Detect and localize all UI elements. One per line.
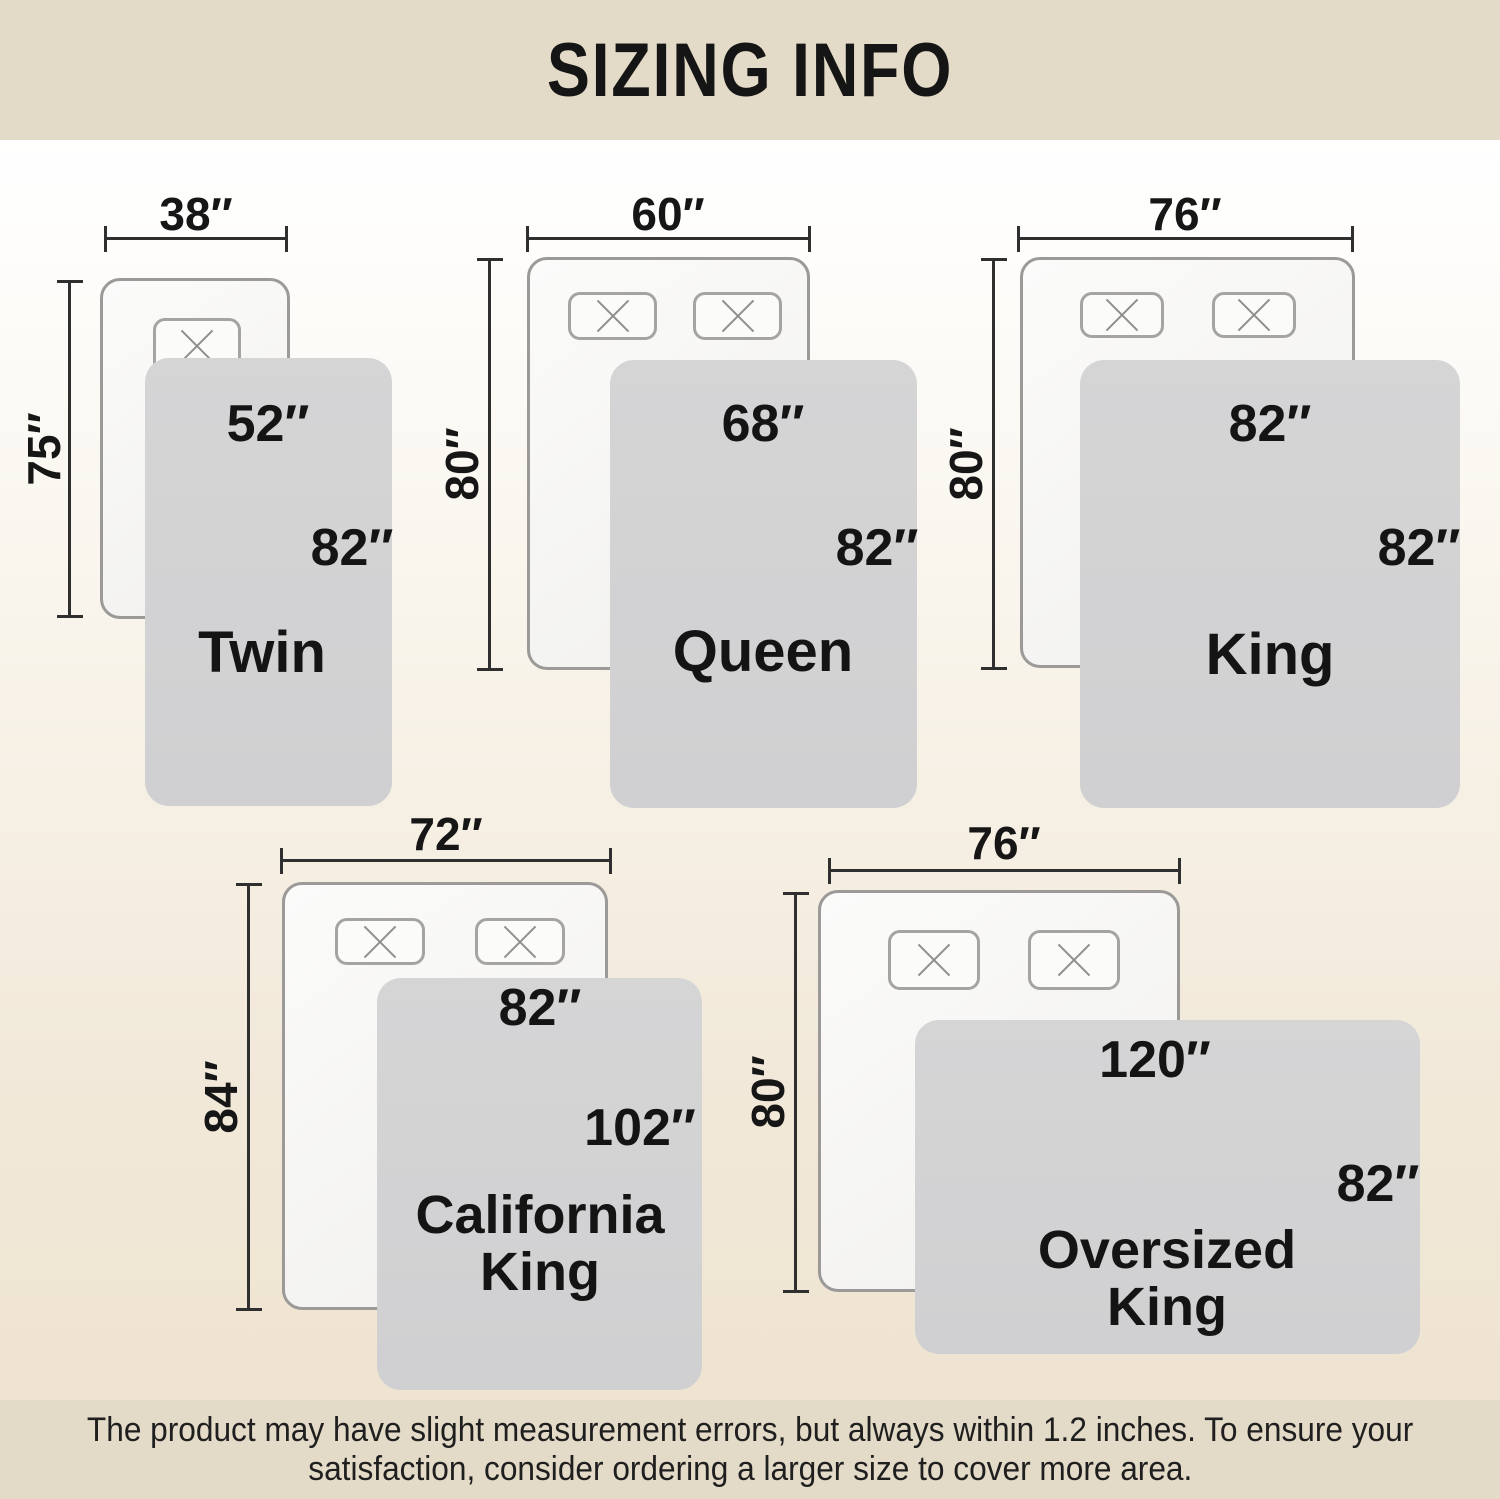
king-blanket-length-label: 82″ [1378,518,1461,578]
footer-disclaimer-line-1: The product may have slight measurement … [87,1411,1413,1450]
king-pillow-left [1080,292,1164,338]
california-king-blanket [377,978,702,1390]
twin-blanket-width-label: 52″ [227,394,310,454]
queen-bed-width-label: 60″ [631,187,704,241]
california-king-pillow-left [335,918,425,965]
pillow-x-icon [1231,292,1277,338]
oversized-king-blanket-width-label: 120″ [1099,1030,1211,1090]
sizing-infographic: SIZING INFO 38″ 75″ 52″ 82″ Twin 60″ 80″ [0,0,1500,1499]
pillow-x-icon [911,937,957,983]
oversized-king-blanket-length-label: 82″ [1337,1154,1420,1214]
oversized-king-pillow-left [888,930,980,990]
pillow-x-icon [357,919,403,965]
size-name-line-2: King [415,1244,664,1301]
pillow-x-icon [497,919,543,965]
queen-blanket-width-label: 68″ [722,394,805,454]
page-title: SIZING INFO [547,27,953,114]
size-name-line-1: Queen [673,623,854,681]
california-king-blanket-width-label: 82″ [499,978,582,1038]
oversized-king-bed-length-label: 80″ [741,1055,795,1128]
pillow-x-icon [715,293,761,339]
king-pillow-right [1212,292,1296,338]
pillow-x-icon [590,293,636,339]
california-king-bed-width-label: 72″ [409,807,482,861]
twin-bed-width-label: 38″ [159,187,232,241]
king-bed-length-label: 80″ [939,427,993,500]
size-name-line-1: Oversized [1038,1222,1296,1279]
queen-pillow-left [568,292,657,340]
queen-size-name: Queen [673,623,854,681]
california-king-size-name: California King [415,1187,664,1301]
oversized-king-pillow-right [1028,930,1120,990]
twin-bed-length-label: 75″ [17,412,71,485]
king-size-name: King [1206,626,1335,684]
pillow-x-icon [1051,937,1097,983]
oversized-king-size-name: Oversized King [1038,1222,1296,1336]
california-king-pillow-right [475,918,565,965]
size-name-line-2: King [1038,1279,1296,1336]
pillow-x-icon [1099,292,1145,338]
king-bed-width-label: 76″ [1148,187,1221,241]
footer-band: The product may have slight measurement … [0,1400,1500,1499]
size-name-line-1: California [415,1187,664,1244]
size-name-line-1: King [1206,626,1335,684]
queen-pillow-right [693,292,782,340]
queen-bed-length-label: 80″ [435,427,489,500]
header-band: SIZING INFO [0,0,1500,140]
california-king-blanket-length-label: 102″ [584,1098,696,1158]
king-blanket-width-label: 82″ [1229,394,1312,454]
california-king-bed-length-label: 84″ [194,1060,248,1133]
footer-disclaimer-line-2: satisfaction, consider ordering a larger… [308,1450,1192,1489]
oversized-king-bed-width-label: 76″ [967,816,1040,870]
twin-blanket-length-label: 82″ [311,518,394,578]
twin-size-name: Twin [198,624,326,682]
size-name-line-1: Twin [198,624,326,682]
queen-blanket-length-label: 82″ [836,518,919,578]
